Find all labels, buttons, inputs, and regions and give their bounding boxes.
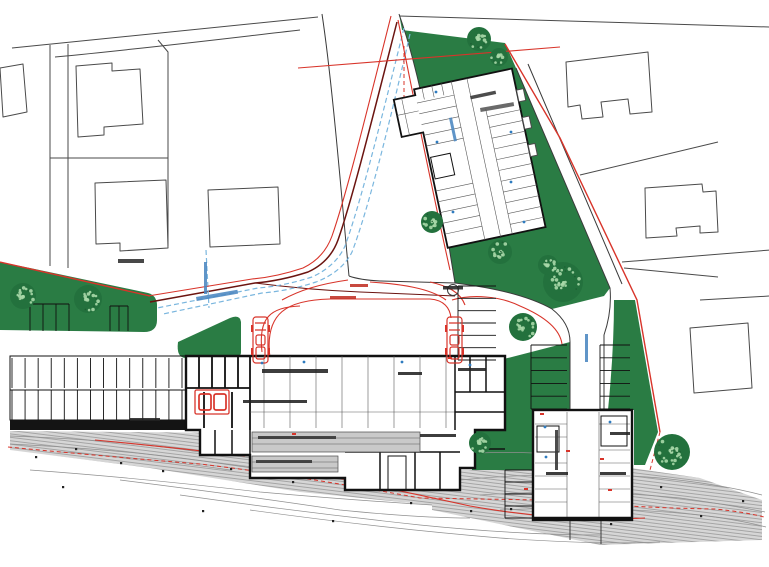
- canopy-gray-strip: [252, 432, 420, 452]
- utility-dot: [544, 426, 547, 429]
- micro-label: [350, 284, 368, 287]
- tree-speckle: [561, 283, 564, 286]
- micro-label: [420, 434, 456, 437]
- tree-speckle: [93, 306, 95, 308]
- micro-label: [262, 369, 328, 373]
- tree-speckle: [518, 325, 522, 329]
- micro-label: [546, 472, 568, 475]
- tree-speckle: [574, 276, 576, 278]
- tree-speckle: [547, 260, 549, 262]
- tree-speckle: [555, 286, 559, 290]
- tree: [10, 283, 36, 309]
- tree-speckle: [556, 274, 558, 276]
- tree-speckle: [679, 456, 682, 459]
- tree-speckle: [423, 220, 425, 222]
- micro-label: [330, 296, 356, 299]
- bus-wheel: [462, 325, 464, 332]
- red-mark: [448, 357, 452, 359]
- tree-speckle: [95, 295, 98, 298]
- utility-dot: [436, 141, 439, 144]
- micro-label: [585, 334, 588, 362]
- tree-speckle: [500, 61, 503, 64]
- tree-speckle: [673, 449, 675, 451]
- tree-speckle: [560, 269, 563, 272]
- survey-dot: [742, 500, 744, 502]
- bus-wheel: [462, 348, 464, 355]
- tree-speckle: [501, 252, 503, 254]
- micro-label: [610, 432, 630, 435]
- tree-speckle: [498, 54, 501, 57]
- tree-speckle: [658, 451, 662, 455]
- upper-building: [393, 67, 553, 252]
- utility-dot: [523, 221, 526, 224]
- tree: [654, 434, 690, 470]
- tree-speckle: [672, 463, 675, 466]
- tree-speckle: [92, 294, 96, 298]
- tree-speckle: [95, 303, 98, 306]
- tree-speckle: [500, 254, 502, 256]
- tree: [538, 255, 558, 275]
- parking-lot-outline: [10, 356, 186, 420]
- tree-speckle: [479, 450, 482, 453]
- maroon-utility-line: [150, 22, 397, 302]
- neighbour-building: [95, 180, 168, 251]
- neighbour-building: [566, 52, 652, 119]
- tree-speckle: [471, 447, 474, 450]
- red-mark: [524, 488, 528, 490]
- tree-speckle: [568, 267, 572, 271]
- micro-label: [256, 460, 312, 463]
- micro-label: [258, 436, 336, 439]
- tree-speckle: [31, 298, 35, 302]
- bus-wheel: [268, 348, 270, 355]
- retaining-wall: [10, 420, 188, 430]
- bus-wheel: [268, 325, 270, 332]
- tree-speckle: [577, 283, 580, 286]
- tree-speckle: [87, 292, 91, 296]
- stall-group: [12, 358, 182, 388]
- red-mark: [566, 450, 570, 452]
- survey-dot: [75, 448, 77, 450]
- tree-speckle: [21, 289, 23, 291]
- tree-speckle: [434, 222, 437, 225]
- micro-label: [443, 286, 463, 290]
- tree-speckle: [483, 448, 485, 450]
- utility-dot: [510, 181, 513, 184]
- blue-utility-line: [163, 34, 410, 314]
- neighbour-building: [0, 64, 27, 117]
- tree-speckle: [517, 319, 521, 323]
- tree-speckle: [491, 251, 493, 253]
- tree-speckle: [558, 272, 562, 276]
- survey-dot: [332, 520, 334, 522]
- tree-speckle: [498, 62, 500, 64]
- tree-speckle: [676, 452, 678, 454]
- tree-speckle: [663, 457, 666, 460]
- tree-speckle: [497, 255, 500, 258]
- tree-speckle: [494, 244, 496, 246]
- tree-speckle: [25, 288, 28, 291]
- micro-label: [398, 372, 422, 375]
- micro-label: [243, 400, 307, 403]
- tree-speckle: [494, 61, 497, 64]
- tree-speckle: [551, 278, 555, 282]
- tree-speckle: [496, 242, 500, 246]
- north-road-west-edge: [322, 14, 349, 276]
- tree-speckle: [553, 276, 556, 279]
- tree-speckle: [531, 322, 535, 326]
- tree: [509, 313, 537, 341]
- tree-speckle: [555, 278, 559, 282]
- tree-speckle: [551, 261, 553, 263]
- micro-label: [555, 430, 558, 470]
- lower-building: [533, 410, 632, 520]
- tree-speckle: [431, 221, 433, 223]
- west-parking-lot: [10, 356, 188, 430]
- blue-utility-line: [157, 28, 404, 308]
- tree-speckle: [554, 284, 557, 287]
- tree-speckle: [30, 293, 33, 296]
- tree-speckle: [18, 291, 22, 295]
- tree-speckle: [481, 34, 485, 38]
- tree-speckle: [484, 446, 487, 449]
- micro-label: [130, 418, 160, 421]
- tree-speckle: [477, 46, 479, 48]
- tree-speckle: [677, 459, 679, 461]
- red-mark: [292, 433, 296, 435]
- red-mark: [600, 458, 604, 460]
- stall-lines: [12, 390, 182, 420]
- tree-speckle: [529, 322, 531, 324]
- tree-speckle: [577, 277, 581, 281]
- parcel-boundary-line: [55, 30, 300, 57]
- utility-dot: [469, 364, 472, 367]
- tree-speckle: [565, 270, 567, 272]
- tree-speckle: [470, 43, 472, 45]
- tree-speckle: [671, 459, 674, 462]
- micro-label: [118, 259, 144, 263]
- tree-speckle: [528, 335, 531, 338]
- neighbour-building: [76, 63, 143, 137]
- survey-dot: [230, 468, 232, 470]
- tree-speckle: [504, 242, 508, 246]
- red-mark: [540, 413, 544, 415]
- tree: [490, 48, 508, 66]
- tree-speckle: [22, 295, 25, 298]
- tree-speckle: [472, 45, 475, 48]
- tree-speckle: [523, 320, 525, 322]
- tree-speckle: [500, 251, 502, 253]
- neighbour-building: [645, 184, 718, 238]
- tree-speckle: [427, 214, 429, 216]
- tree-speckle: [493, 60, 495, 62]
- tree-speckle: [658, 444, 660, 446]
- tree-speckle: [477, 36, 480, 39]
- tree-speckle: [424, 223, 428, 227]
- survey-dot: [660, 486, 662, 488]
- micro-label: [204, 262, 207, 294]
- micro-label: [196, 290, 238, 301]
- tree-speckle: [572, 271, 575, 274]
- tree-speckle: [85, 309, 87, 311]
- tree-speckle: [483, 43, 485, 45]
- tree-speckle: [520, 319, 523, 322]
- canopy-gray-strip: [252, 456, 338, 472]
- micro-label: [600, 472, 626, 475]
- tree-speckle: [479, 438, 483, 442]
- survey-dot: [470, 510, 472, 512]
- tree-speckle: [91, 308, 95, 312]
- tree-speckle: [518, 322, 520, 324]
- tree-speckle: [481, 449, 485, 453]
- tree-speckle: [669, 462, 671, 464]
- tree-speckle: [531, 332, 535, 336]
- site-plan-canvas: [0, 0, 769, 567]
- tree-speckle: [502, 242, 504, 244]
- tree-speckle: [575, 288, 577, 290]
- utility-dot: [303, 361, 306, 364]
- tree-speckle: [432, 225, 435, 228]
- tree-speckle: [502, 59, 504, 61]
- tree-speckle: [29, 289, 33, 293]
- survey-dot: [202, 510, 204, 512]
- swept-path-arc: [370, 282, 446, 300]
- red-mark: [608, 489, 612, 491]
- tree-speckle: [532, 326, 535, 329]
- survey-dot: [35, 456, 37, 458]
- red-utility-line: [148, 16, 391, 296]
- utility-lines: [148, 16, 455, 314]
- green-island-plaza: [178, 317, 241, 358]
- bus-cab: [256, 335, 265, 345]
- bus-wheel: [445, 325, 447, 332]
- survey-dot: [120, 462, 122, 464]
- tree-speckle: [18, 294, 22, 298]
- neighbour-building: [208, 187, 280, 247]
- tree-speckle: [27, 290, 29, 292]
- tree-speckle: [527, 319, 530, 322]
- tree-speckle: [659, 457, 661, 459]
- utility-dot: [401, 361, 404, 364]
- tree-speckle: [661, 460, 664, 463]
- bus-wheel: [251, 325, 253, 332]
- parcel-boundary-line: [399, 16, 769, 27]
- tree-speckle: [88, 309, 91, 312]
- utility-dot: [510, 131, 513, 134]
- tree: [467, 27, 491, 51]
- tree-speckle: [95, 298, 97, 300]
- tree: [74, 285, 102, 313]
- tree-speckle: [679, 451, 681, 453]
- tree-speckle: [552, 269, 555, 272]
- tree-speckle: [564, 266, 566, 268]
- utility-dot: [435, 91, 438, 94]
- tree-speckle: [676, 455, 679, 458]
- tree-speckle: [490, 56, 493, 59]
- tree-speckle: [661, 440, 665, 444]
- survey-dot: [510, 508, 512, 510]
- bus-wheel: [445, 348, 447, 355]
- tree-speckle: [664, 459, 668, 463]
- tree-speckle: [558, 282, 561, 285]
- tree-speckle: [671, 450, 673, 452]
- survey-dot: [700, 515, 702, 517]
- parcel-boundary-line: [12, 17, 318, 48]
- swept-path-arc: [269, 299, 451, 358]
- tree-speckle: [676, 449, 679, 452]
- tree-speckle: [491, 248, 495, 252]
- stall-lines: [12, 358, 182, 388]
- neighbour-building: [690, 323, 752, 393]
- survey-dot: [292, 481, 294, 483]
- survey-dot: [162, 470, 164, 472]
- utility-dot: [609, 421, 612, 424]
- tree-speckle: [96, 299, 100, 303]
- survey-dot: [410, 502, 412, 504]
- tree-speckle: [493, 252, 496, 255]
- tree-speckle: [531, 320, 533, 322]
- tree-speckle: [501, 56, 505, 60]
- tree-speckle: [560, 287, 563, 290]
- tree-speckle: [553, 263, 556, 266]
- utility-dot: [261, 362, 264, 365]
- tree-speckle: [30, 301, 33, 304]
- tree-speckle: [480, 46, 483, 49]
- stall-group: [12, 390, 182, 420]
- micro-label: [458, 368, 486, 371]
- tree: [421, 211, 443, 233]
- tree-speckle: [673, 459, 677, 463]
- utility-dot: [545, 456, 548, 459]
- tree-speckle: [482, 439, 486, 443]
- bus-wheel: [251, 348, 253, 355]
- tree-speckle: [85, 297, 88, 300]
- tree-speckle: [423, 217, 427, 221]
- tree-speckle: [544, 263, 548, 267]
- tree-speckle: [485, 443, 487, 445]
- tree-speckle: [483, 38, 487, 42]
- tree-speckle: [429, 226, 433, 230]
- utility-dot: [452, 211, 455, 214]
- tree-speckle: [478, 442, 481, 445]
- tree: [488, 240, 512, 264]
- survey-dot: [610, 523, 612, 525]
- tree: [469, 432, 491, 454]
- survey-dot: [62, 486, 64, 488]
